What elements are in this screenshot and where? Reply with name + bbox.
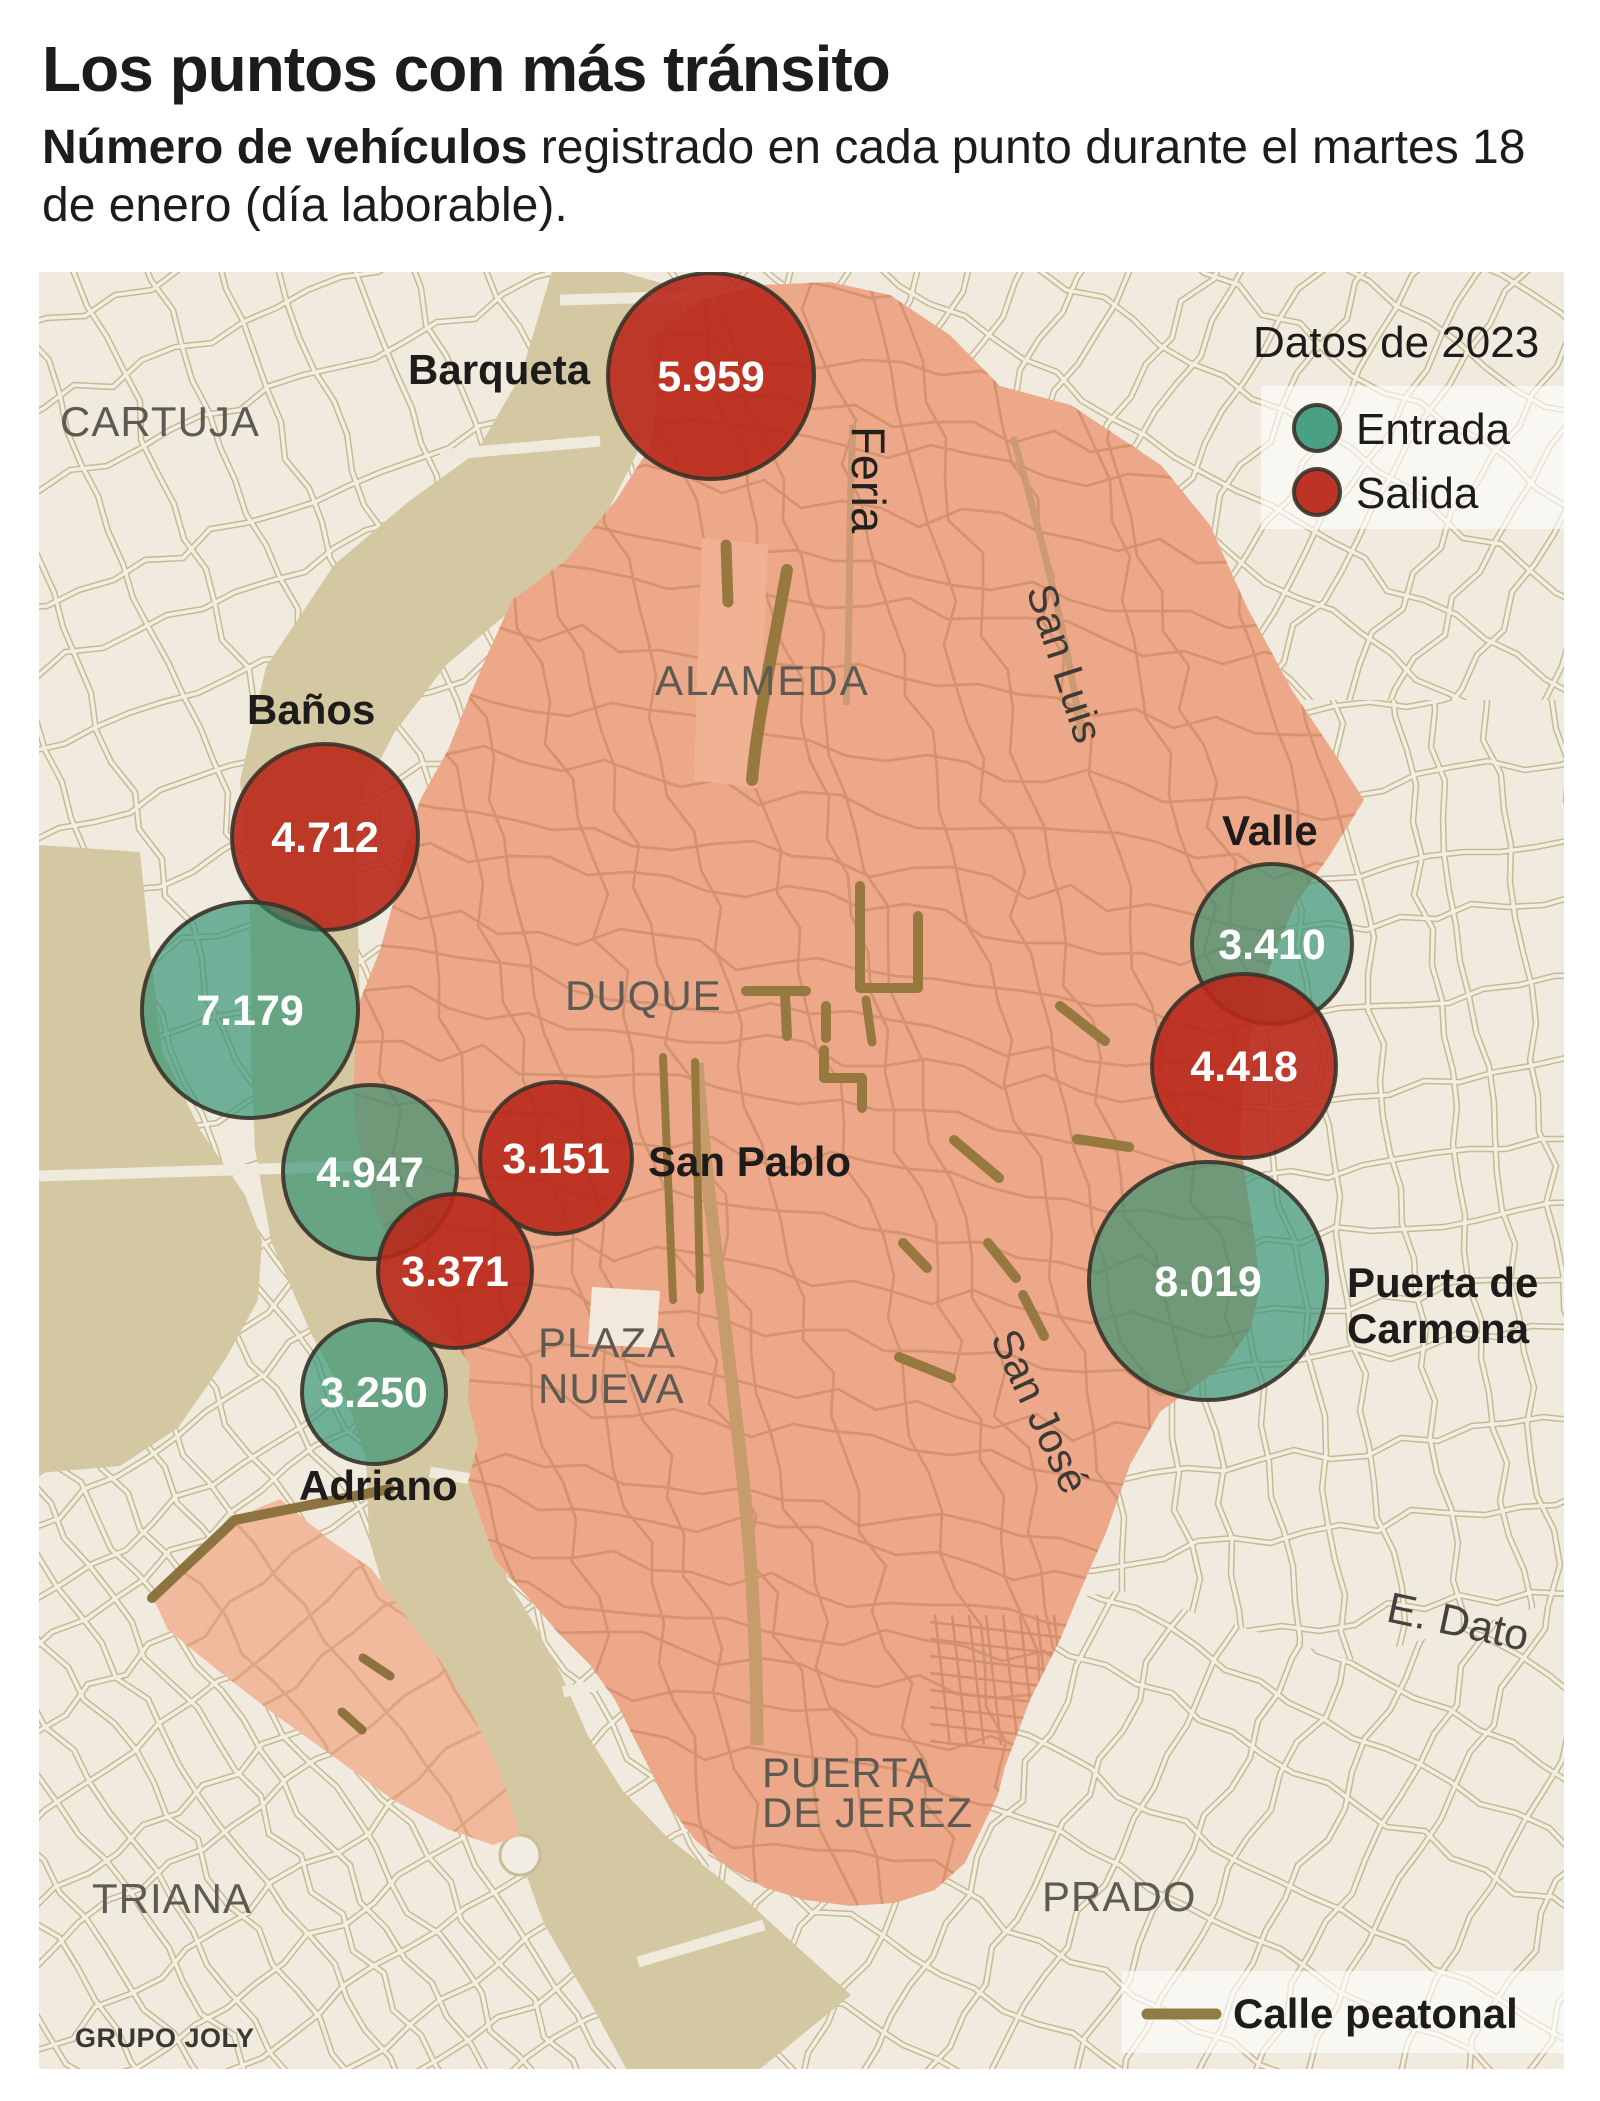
svg-text:4.418: 4.418 [1190,1043,1298,1091]
svg-text:3.371: 3.371 [401,1248,509,1296]
svg-text:DUQUE: DUQUE [565,972,722,1019]
svg-text:3.151: 3.151 [502,1135,610,1183]
svg-text:8.019: 8.019 [1154,1258,1262,1306]
svg-text:Valle: Valle [1222,807,1318,854]
svg-text:Datos de 2023: Datos de 2023 [1253,318,1539,367]
svg-text:5.959: 5.959 [657,353,765,401]
svg-text:Calle peatonal: Calle peatonal [1233,1990,1518,2037]
svg-text:DE JEREZ: DE JEREZ [762,1789,973,1836]
svg-text:3.250: 3.250 [320,1369,428,1417]
svg-text:PRADO: PRADO [1042,1873,1196,1920]
svg-text:NUEVA: NUEVA [538,1365,685,1412]
svg-text:Adriano: Adriano [299,1462,458,1509]
svg-text:4.712: 4.712 [271,814,379,862]
svg-text:3.410: 3.410 [1218,921,1326,969]
svg-text:Baños: Baños [247,686,375,733]
svg-text:Barqueta: Barqueta [408,346,591,393]
svg-text:ALAMEDA: ALAMEDA [655,657,870,704]
svg-text:4.947: 4.947 [316,1149,424,1197]
svg-text:Salida: Salida [1356,469,1479,518]
svg-text:CARTUJA: CARTUJA [60,398,260,445]
svg-text:TRIANA: TRIANA [92,1875,252,1922]
svg-text:San Pablo: San Pablo [648,1138,851,1185]
svg-text:Carmona: Carmona [1347,1305,1530,1352]
svg-text:PLAZA: PLAZA [538,1319,676,1366]
svg-text:7.179: 7.179 [196,987,304,1035]
svg-text:GRUPO JOLY: GRUPO JOLY [75,2023,255,2053]
svg-text:Feria: Feria [842,426,895,534]
svg-text:Entrada: Entrada [1356,405,1511,454]
svg-text:Puerta de: Puerta de [1347,1259,1538,1306]
